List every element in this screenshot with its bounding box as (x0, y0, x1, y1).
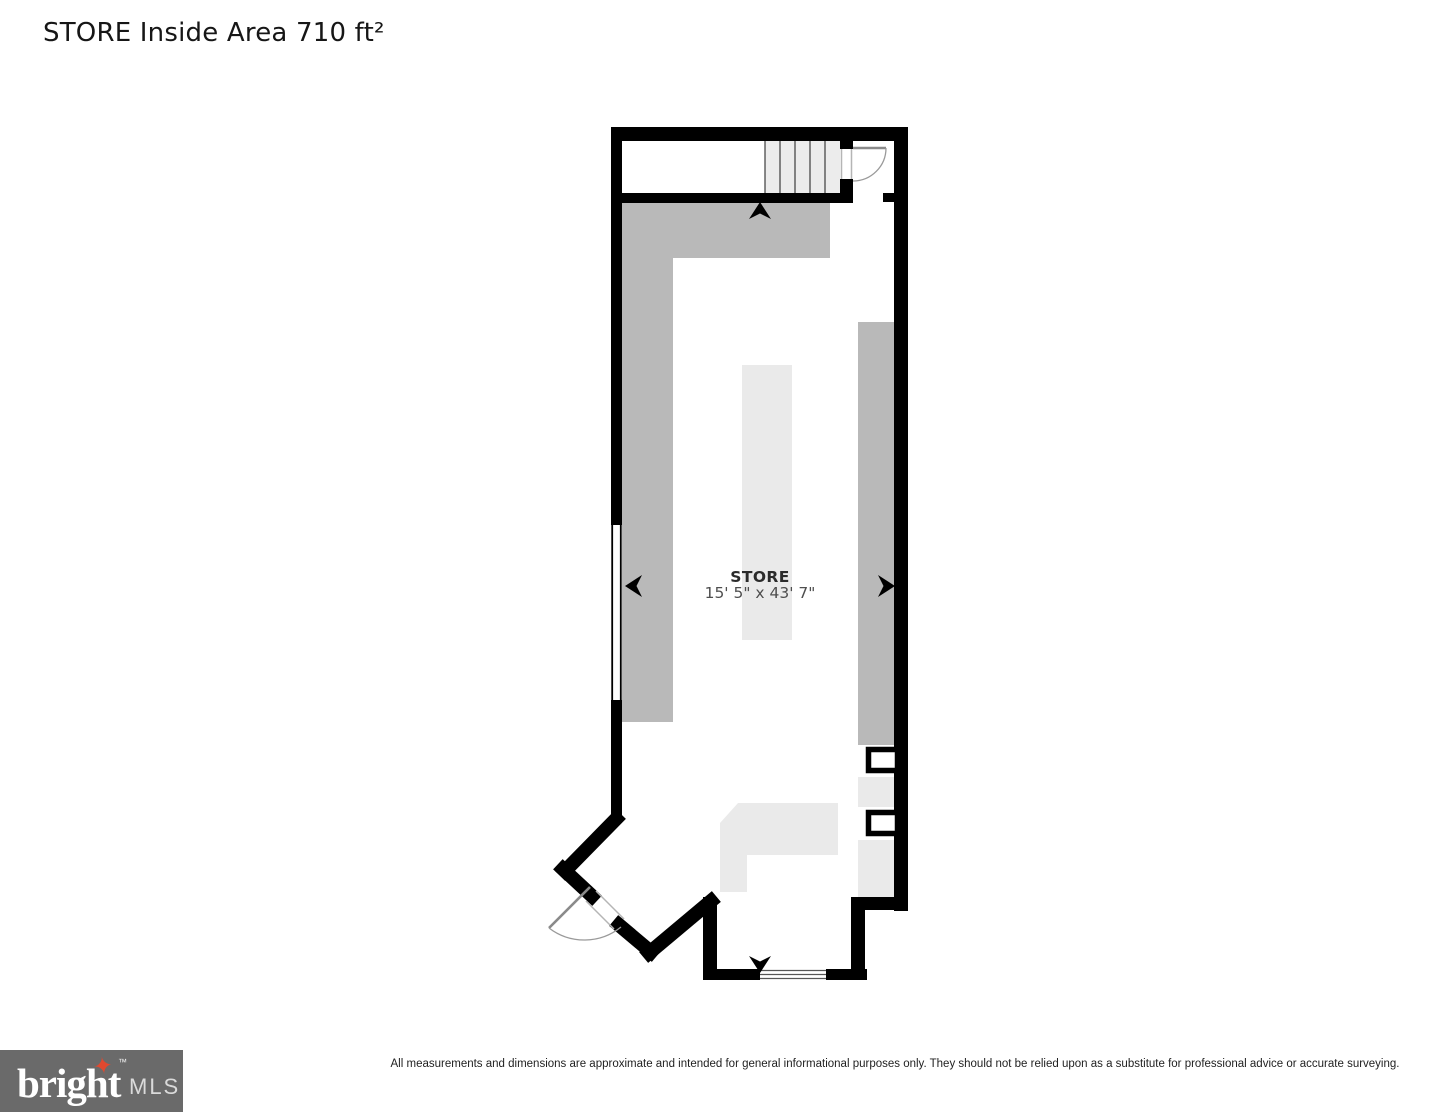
wall-right-stub (883, 193, 894, 202)
wall-right-bottom (851, 897, 908, 910)
logo-mls-text: MLS (129, 1076, 180, 1098)
wall-diagonal-to-vestibule (649, 901, 711, 953)
floor-plan (0, 0, 1440, 1112)
right-lower-fixture-2 (858, 840, 894, 897)
niche-1 (869, 750, 898, 771)
disclaimer: All measurements and dimensions are appr… (391, 1058, 1400, 1070)
left-counter (622, 203, 830, 722)
wall-stair-jamb-top (840, 141, 853, 149)
right-lower-fixture-1 (858, 777, 894, 807)
wall-diagonal-upper (565, 819, 616, 871)
staircase (765, 141, 840, 193)
stair-treads-area (765, 141, 840, 193)
logo-trademark: ™ (118, 1057, 127, 1067)
wall-stair-bottom (622, 193, 853, 203)
walls-diagonal (563, 819, 711, 953)
wall-left-upper (611, 127, 622, 525)
niche-2 (869, 813, 898, 834)
room-label-box: STORE 15' 5" x 43' 7" (705, 570, 816, 601)
bottom-storefront-window (760, 969, 826, 980)
floorplan-page: STORE Inside Area 710 ft² (0, 0, 1440, 1112)
wall-left-lower (611, 700, 622, 823)
wall-vestibule-bottom-left (703, 969, 760, 980)
top-door-arc (853, 148, 886, 181)
wall-vestibule-right (851, 908, 865, 980)
logo-star-icon: ✦ (91, 1053, 114, 1080)
wall-stair-jamb-bottom (840, 179, 853, 203)
entry-door-arc (549, 927, 621, 940)
room-label: STORE (705, 570, 816, 585)
left-window (611, 525, 622, 700)
room-dimensions: 15' 5" x 43' 7" (705, 585, 816, 601)
wall-top (612, 127, 908, 141)
bottom-fixture (720, 803, 838, 892)
wall-right (894, 127, 908, 911)
right-counter (858, 322, 894, 745)
brand-logo: bright ✦ ™ MLS (0, 1050, 183, 1112)
entry-door-leaf (549, 887, 590, 928)
wall-diagonal-door-top (563, 869, 592, 896)
